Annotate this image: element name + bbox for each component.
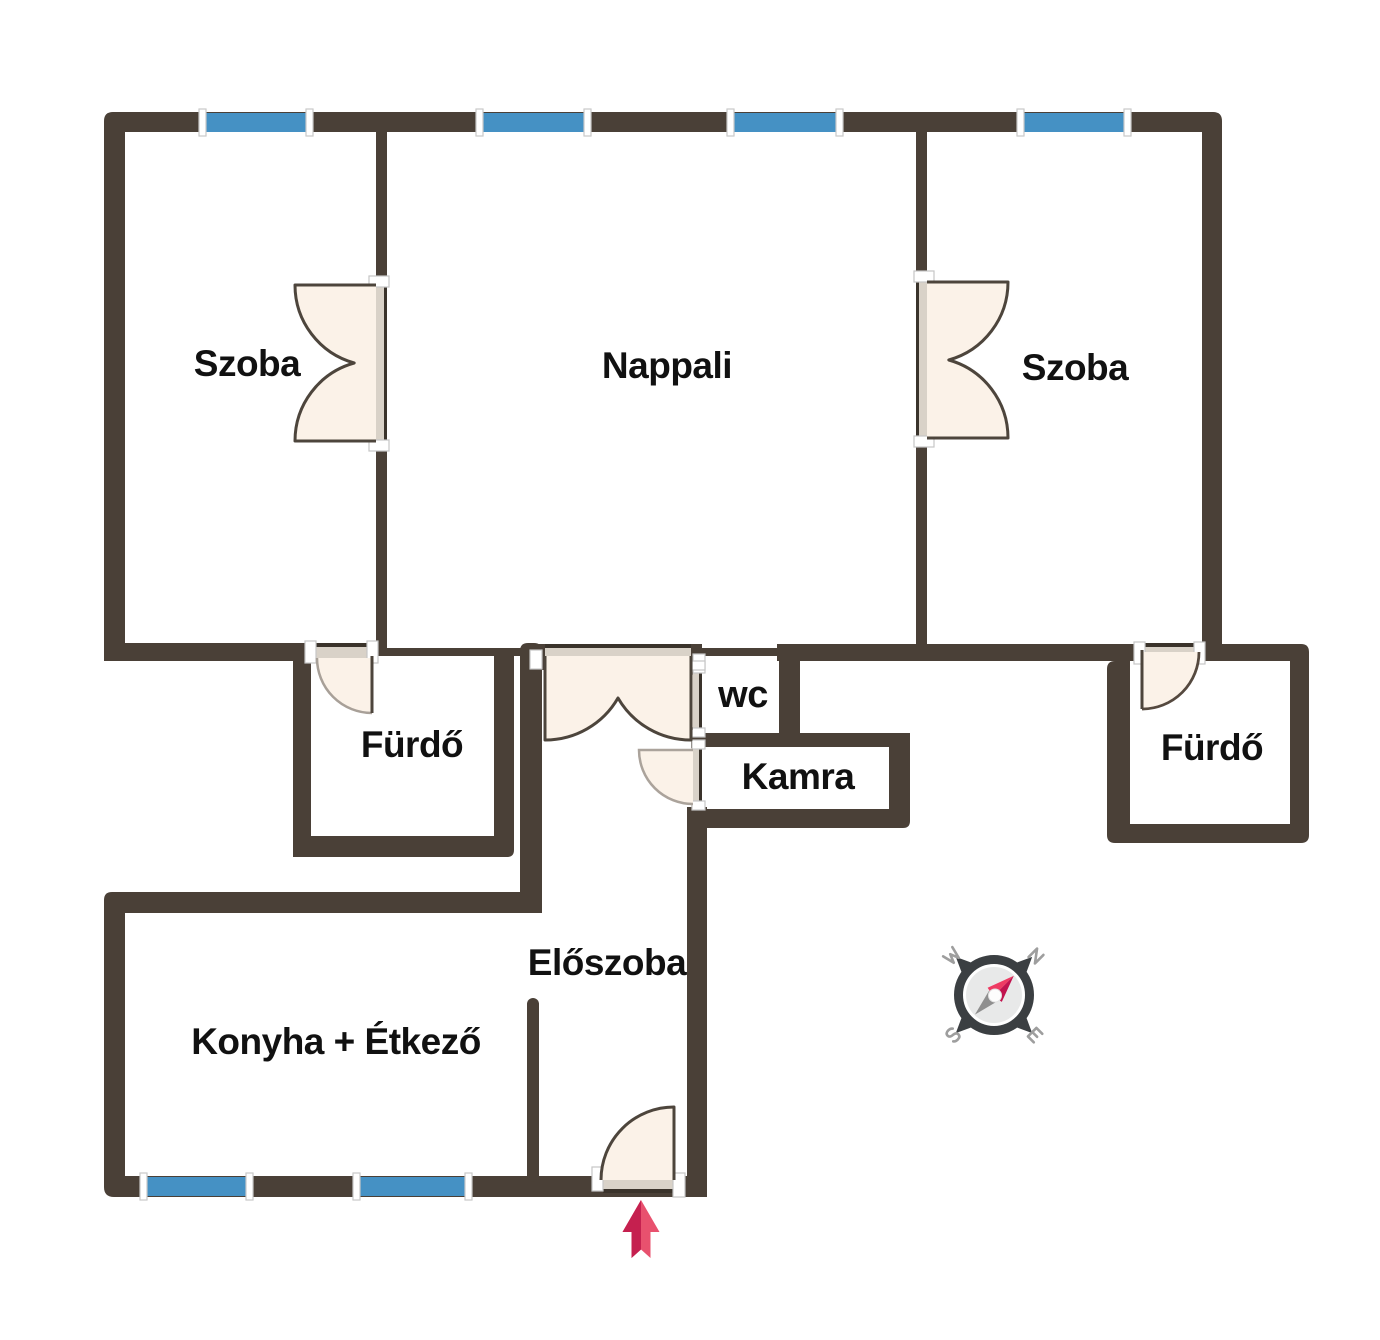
svg-text:Szoba: Szoba bbox=[194, 343, 301, 384]
svg-text:Kamra: Kamra bbox=[742, 756, 856, 797]
svg-text:wc: wc bbox=[717, 674, 768, 716]
svg-text:Szoba: Szoba bbox=[1022, 347, 1129, 388]
svg-text:Előszoba: Előszoba bbox=[528, 942, 687, 983]
svg-text:Fürdő: Fürdő bbox=[361, 724, 463, 765]
svg-text:Konyha + Étkező: Konyha + Étkező bbox=[191, 1021, 481, 1062]
svg-text:Fürdő: Fürdő bbox=[1161, 727, 1263, 768]
svg-text:Nappali: Nappali bbox=[602, 345, 732, 386]
